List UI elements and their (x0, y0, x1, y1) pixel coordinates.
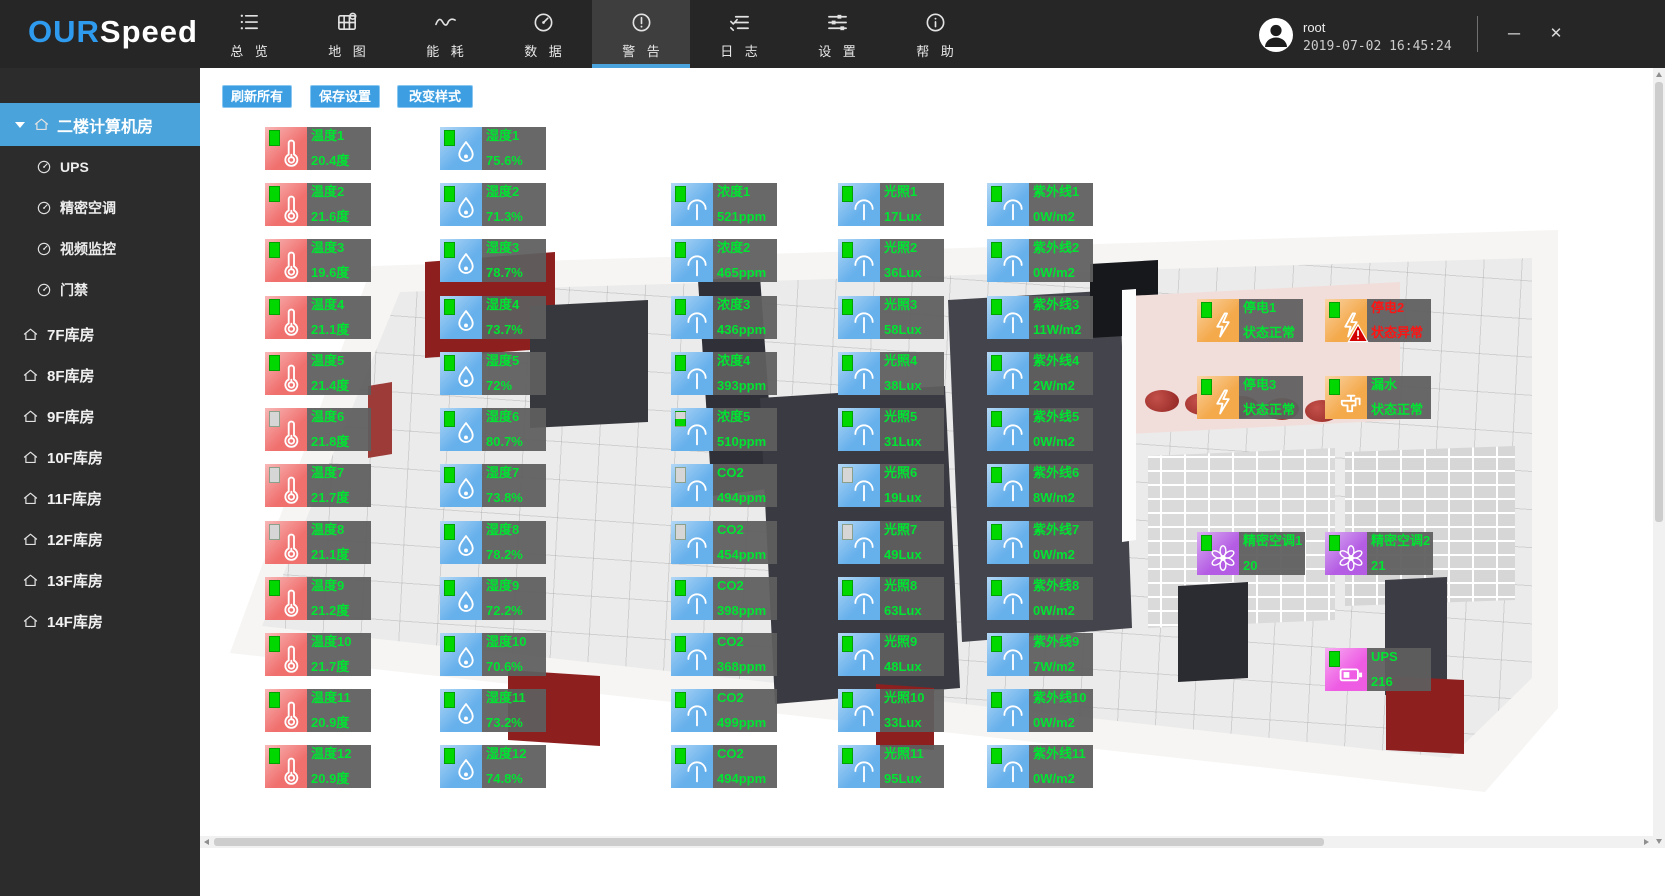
co2-sensor-badge[interactable]: CO2 494ppm (671, 464, 777, 507)
uv-sensor-badge[interactable]: 紫外线9 7W/m2 (987, 633, 1093, 676)
sensor-label: 湿度2 (486, 184, 543, 199)
meter-icon (683, 644, 711, 674)
sensor-tile (265, 689, 307, 732)
sensor-panel: 温度6 21.8度 (307, 408, 371, 451)
thermometer-icon (277, 700, 305, 730)
sidebar-item-room-13f[interactable]: 13F库房 (0, 560, 200, 601)
sidebar-item-active-room[interactable]: 二楼计算机房 (0, 103, 200, 146)
sensor-value: 20.9度 (311, 715, 368, 730)
thermometer-icon (277, 475, 305, 505)
sensor-panel: 精密空调1 20 (1239, 532, 1305, 575)
sensor-label: 湿度8 (486, 522, 543, 537)
sensor-panel: CO2 494ppm (713, 464, 777, 507)
nav-item-overview[interactable]: 总 览 (200, 0, 298, 68)
sensor-value: 36Lux (884, 265, 941, 280)
co2-sensor-badge[interactable]: CO2 454ppm (671, 521, 777, 564)
battery-indicator (842, 186, 853, 202)
sensor-label: 紫外线8 (1033, 578, 1090, 593)
uv-sensor-badge[interactable]: 紫外线10 0W/m2 (987, 689, 1093, 732)
sidebar-subitem-1[interactable]: UPS (0, 146, 200, 187)
light-sensor-badge[interactable]: 光照10 33Lux (838, 689, 944, 732)
sensor-label: CO2 (717, 578, 774, 593)
sensor-tile (440, 408, 482, 451)
nav-item-map[interactable]: 地 图 (298, 0, 396, 68)
sensor-label: 停电1 (1243, 300, 1300, 315)
temperature-sensor-badge[interactable]: 温度3 19.6度 (265, 239, 371, 282)
sensor-panel: UPS 216 (1367, 648, 1431, 691)
sidebar-item-room-11f[interactable]: 11F库房 (0, 478, 200, 519)
home-icon (22, 449, 39, 466)
power-sensor-badge[interactable]: 停电3 状态正常 (1197, 376, 1303, 419)
sensor-tile (440, 296, 482, 339)
sensor-value: 72.2% (486, 603, 543, 618)
sensor-label: 停电2 (1371, 300, 1428, 315)
sensor-value: 436ppm (717, 322, 774, 337)
humidity-sensor-badge[interactable]: 湿度7 73.8% (440, 464, 546, 507)
humidity-sensor-badge[interactable]: 湿度5 72% (440, 352, 546, 395)
sensor-tile (671, 745, 713, 788)
sidebar-item-room-8f[interactable]: 8F库房 (0, 355, 200, 396)
sensor-panel: 光照9 48Lux (880, 633, 944, 676)
sensor-value: 398ppm (717, 603, 774, 618)
sensor-label: 精密空调2 (1371, 533, 1430, 548)
uv-sensor-badge[interactable]: 紫外线2 0W/m2 (987, 239, 1093, 282)
sensor-value: 20 (1243, 558, 1302, 573)
gauge-icon (532, 11, 555, 34)
sensor-panel: 温度11 20.9度 (307, 689, 371, 732)
sliders-icon (826, 11, 849, 34)
sensor-panel: 停电1 状态正常 (1239, 299, 1303, 342)
nav-item-label: 能 耗 (422, 41, 468, 60)
nav-item-alerts[interactable]: 警 告 (592, 0, 690, 68)
battery-indicator (1329, 535, 1340, 551)
sensor-value: 状态正常 (1371, 402, 1428, 417)
ac-sensor-badge[interactable]: 精密空调2 21 (1325, 532, 1431, 575)
thermometer-icon (277, 644, 305, 674)
sensor-tile (838, 745, 880, 788)
sensor-panel: 光照10 33Lux (880, 689, 944, 732)
sensor-tile (987, 464, 1029, 507)
main-nav: 总 览地 图能 耗数 据警 告日 志设 置帮 助 (200, 0, 984, 68)
nav-item-label: 总 览 (226, 41, 272, 60)
sensor-value: 0W/m2 (1033, 209, 1090, 224)
sensor-tile (838, 689, 880, 732)
light-sensor-badge[interactable]: 光照5 31Lux (838, 408, 944, 451)
sensor-tile (265, 464, 307, 507)
thermometer-icon (277, 419, 305, 449)
uv-sensor-badge[interactable]: 紫外线6 8W/m2 (987, 464, 1093, 507)
home-icon (33, 116, 50, 133)
co2-sensor-badge[interactable]: 浓度4 393ppm (671, 352, 777, 395)
sensor-tile (987, 745, 1029, 788)
uv-sensor-badge[interactable]: 紫外线7 0W/m2 (987, 521, 1093, 564)
co2-sensor-badge[interactable]: 浓度3 436ppm (671, 296, 777, 339)
sensor-tile (987, 408, 1029, 451)
sidebar-item-room-7f[interactable]: 7F库房 (0, 314, 200, 355)
home-icon (22, 572, 39, 589)
scroll-up-icon[interactable] (1656, 72, 1662, 77)
scroll-left-icon[interactable] (204, 839, 209, 845)
sensor-panel: 光照7 49Lux (880, 521, 944, 564)
bolt-icon (1209, 310, 1237, 340)
refresh-all-button[interactable]: 刷新所有 (222, 85, 292, 108)
ac-sensor-badge[interactable]: 精密空调1 20 (1197, 532, 1303, 575)
droplet-icon (452, 644, 480, 674)
sensor-label: CO2 (717, 522, 774, 537)
thermometer-icon (277, 307, 305, 337)
humidity-sensor-badge[interactable]: 湿度9 72.2% (440, 577, 546, 620)
light-sensor-badge[interactable]: 光照2 36Lux (838, 239, 944, 282)
sensor-tile (987, 352, 1029, 395)
sensor-value: 2W/m2 (1033, 378, 1090, 393)
humidity-sensor-badge[interactable]: 湿度11 73.2% (440, 689, 546, 732)
sensor-label: 光照2 (884, 240, 941, 255)
meter-icon (999, 363, 1027, 393)
sensor-label: 紫外线4 (1033, 353, 1090, 368)
sensor-tile (671, 296, 713, 339)
sensor-label: UPS (1371, 649, 1428, 664)
sensor-label: 温度9 (311, 578, 368, 593)
battery-indicator (444, 692, 455, 708)
sensor-tile (671, 689, 713, 732)
sensor-panel: 紫外线10 0W/m2 (1029, 689, 1093, 732)
sensor-panel: 湿度10 70.6% (482, 633, 546, 676)
sensor-value: 74.8% (486, 771, 543, 786)
co2-sensor-badge[interactable]: 浓度2 465ppm (671, 239, 777, 282)
battery-indicator (444, 186, 455, 202)
sensor-panel: 浓度4 393ppm (713, 352, 777, 395)
sensor-value: 465ppm (717, 265, 774, 280)
logo-text-blue: OUR (28, 14, 100, 49)
uv-sensor-badge[interactable]: 紫外线8 0W/m2 (987, 577, 1093, 620)
sensor-label: 湿度9 (486, 578, 543, 593)
sensor-label: 停电3 (1243, 377, 1300, 392)
sensor-value: 8W/m2 (1033, 490, 1090, 505)
sensor-label: 光照1 (884, 184, 941, 199)
sensor-label: 光照6 (884, 465, 941, 480)
battery-indicator (444, 748, 455, 764)
sidebar-subitem-2[interactable]: 精密空调 (0, 187, 200, 228)
nav-item-settings[interactable]: 设 置 (788, 0, 886, 68)
sensor-tile (671, 352, 713, 395)
sensor-value: 11W/m2 (1033, 322, 1090, 337)
droplet-icon (452, 475, 480, 505)
meter-icon (683, 363, 711, 393)
battery-indicator (269, 355, 280, 371)
sensor-label: 温度11 (311, 690, 368, 705)
sidebar-item-label: 14F库房 (47, 611, 103, 632)
sensor-tile (440, 521, 482, 564)
humidity-sensor-badge[interactable]: 湿度10 70.6% (440, 633, 546, 676)
meter-icon (850, 307, 878, 337)
co2-sensor-badge[interactable]: CO2 499ppm (671, 689, 777, 732)
meter-icon (999, 756, 1027, 786)
nav-item-label: 设 置 (814, 41, 860, 60)
sensor-panel: CO2 454ppm (713, 521, 777, 564)
sensor-value: 78.7% (486, 265, 543, 280)
nav-item-energy[interactable]: 能 耗 (396, 0, 494, 68)
battery-indicator (444, 411, 455, 427)
sensor-tile (987, 633, 1029, 676)
battery-indicator (675, 524, 686, 540)
change-style-button[interactable]: 改变样式 (397, 85, 473, 108)
light-sensor-badge[interactable]: 光照1 17Lux (838, 183, 944, 226)
sensor-panel: 紫外线8 0W/m2 (1029, 577, 1093, 620)
sensor-panel: CO2 398ppm (713, 577, 777, 620)
sensor-label: 湿度4 (486, 297, 543, 312)
sensor-value: 95Lux (884, 771, 941, 786)
sensor-tile (838, 296, 880, 339)
fan-icon (1337, 543, 1365, 573)
sensor-label: 紫外线3 (1033, 297, 1090, 312)
sensor-panel: 紫外线6 8W/m2 (1029, 464, 1093, 507)
uv-sensor-badge[interactable]: 紫外线4 2W/m2 (987, 352, 1093, 395)
sensor-label: 浓度4 (717, 353, 774, 368)
sidebar-subitem-label: UPS (60, 159, 89, 175)
horizontal-scrollbar[interactable] (200, 836, 1653, 848)
home-icon (22, 613, 39, 630)
battery-indicator (842, 748, 853, 764)
scroll-down-icon[interactable] (1656, 839, 1662, 844)
sensor-panel: 紫外线5 0W/m2 (1029, 408, 1093, 451)
temperature-sensor-badge[interactable]: 温度6 21.8度 (265, 408, 371, 451)
close-button[interactable]: ✕ (1538, 20, 1574, 48)
temperature-sensor-badge[interactable]: 温度12 20.9度 (265, 745, 371, 788)
meter-icon (999, 250, 1027, 280)
meter-icon (683, 532, 711, 562)
humidity-sensor-badge[interactable]: 湿度2 71.3% (440, 183, 546, 226)
co2-sensor-badge[interactable]: CO2 494ppm (671, 745, 777, 788)
sensor-value: 21.8度 (311, 434, 368, 449)
uv-sensor-badge[interactable]: 紫外线5 0W/m2 (987, 408, 1093, 451)
sensor-panel: 浓度5 510ppm (713, 408, 777, 451)
sensor-tile (265, 408, 307, 451)
uv-sensor-badge[interactable]: 紫外线3 11W/m2 (987, 296, 1093, 339)
sensor-value: 38Lux (884, 378, 941, 393)
meter-icon (850, 532, 878, 562)
faucet-icon (1337, 387, 1365, 417)
nav-item-data[interactable]: 数 据 (494, 0, 592, 68)
droplet-icon (452, 419, 480, 449)
list-icon (238, 11, 261, 34)
sensor-panel: 温度9 21.2度 (307, 577, 371, 620)
sensor-tile (987, 689, 1029, 732)
sensor-value: 48Lux (884, 659, 941, 674)
sensor-value: 20.4度 (311, 153, 368, 168)
power-sensor-badge[interactable]: 停电1 状态正常 (1197, 299, 1303, 342)
sensor-value: 70.6% (486, 659, 543, 674)
humidity-sensor-badge[interactable]: 湿度3 78.7% (440, 239, 546, 282)
humidity-sensor-badge[interactable]: 湿度6 80.7% (440, 408, 546, 451)
sensor-tile (671, 183, 713, 226)
nav-item-logs[interactable]: 日 志 (690, 0, 788, 68)
nav-item-help[interactable]: 帮 助 (886, 0, 984, 68)
sensor-panel: 湿度2 71.3% (482, 183, 546, 226)
user-box[interactable]: root 2019-07-02 16:45:24 (1258, 17, 1452, 54)
vertical-scroll-thumb[interactable] (1655, 82, 1663, 522)
sensor-value: 73.2% (486, 715, 543, 730)
light-sensor-badge[interactable]: 光照7 49Lux (838, 521, 944, 564)
user-name: root (1303, 17, 1452, 35)
sensor-value: 499ppm (717, 715, 774, 730)
main-content: 刷新所有保存设置改变样式 温度1 20.4度 温度2 21.6度 温 (200, 68, 1653, 836)
sidebar-item-label: 9F库房 (47, 406, 95, 427)
temperature-sensor-badge[interactable]: 温度10 21.7度 (265, 633, 371, 676)
temperature-sensor-badge[interactable]: 温度9 21.2度 (265, 577, 371, 620)
sensor-panel: 湿度5 72% (482, 352, 546, 395)
sidebar-item-room-10f[interactable]: 10F库房 (0, 437, 200, 478)
sensor-panel: 光照2 36Lux (880, 239, 944, 282)
sensor-panel: 湿度4 73.7% (482, 296, 546, 339)
sensor-label: 浓度3 (717, 297, 774, 312)
minimize-button[interactable]: ─ (1496, 20, 1532, 48)
humidity-sensor-badge[interactable]: 湿度12 74.8% (440, 745, 546, 788)
sensor-tile (671, 464, 713, 507)
log-icon (728, 11, 751, 34)
horizontal-scroll-thumb[interactable] (214, 838, 1324, 846)
sensor-value: 21.2度 (311, 603, 368, 618)
sensor-panel: 温度1 20.4度 (307, 127, 371, 170)
sidebar-item-label: 13F库房 (47, 570, 103, 591)
battery-indicator (269, 130, 280, 146)
sensor-panel: 紫外线2 0W/m2 (1029, 239, 1093, 282)
humidity-sensor-badge[interactable]: 湿度1 75.6% (440, 127, 546, 170)
sidebar-item-room-14f[interactable]: 14F库房 (0, 601, 200, 642)
sidebar-item-label: 11F库房 (47, 488, 102, 509)
droplet-icon (452, 138, 480, 168)
temperature-sensor-badge[interactable]: 温度5 21.4度 (265, 352, 371, 395)
sensor-panel: 浓度1 521ppm (713, 183, 777, 226)
light-sensor-badge[interactable]: 光照4 38Lux (838, 352, 944, 395)
light-sensor-badge[interactable]: 光照8 63Lux (838, 577, 944, 620)
battery-indicator (1201, 535, 1212, 551)
sensor-panel: 光照11 95Lux (880, 745, 944, 788)
sensor-panel: 光照1 17Lux (880, 183, 944, 226)
battery-indicator (991, 580, 1002, 596)
sidebar-item-room-12f[interactable]: 12F库房 (0, 519, 200, 560)
battery-indicator (444, 299, 455, 315)
sensor-label: 温度6 (311, 409, 368, 424)
sensor-value: 63Lux (884, 603, 941, 618)
sensor-panel: 精密空调2 21 (1367, 532, 1433, 575)
battery-indicator (842, 242, 853, 258)
temperature-sensor-badge[interactable]: 温度7 21.7度 (265, 464, 371, 507)
sensor-value: 19.6度 (311, 265, 368, 280)
battery-indicator (675, 355, 686, 371)
humidity-sensor-badge[interactable]: 湿度4 73.7% (440, 296, 546, 339)
titlebar-separator (1477, 16, 1478, 52)
temperature-sensor-badge[interactable]: 温度2 21.6度 (265, 183, 371, 226)
sidebar-item-room-9f[interactable]: 9F库房 (0, 396, 200, 437)
scroll-right-icon[interactable] (1644, 839, 1649, 845)
sensor-label: 温度5 (311, 353, 368, 368)
sensor-value: 20.9度 (311, 771, 368, 786)
meter-icon (683, 475, 711, 505)
sensor-panel: 光照4 38Lux (880, 352, 944, 395)
light-sensor-badge[interactable]: 光照9 48Lux (838, 633, 944, 676)
sensor-label: 湿度5 (486, 353, 543, 368)
temperature-sensor-badge[interactable]: 温度8 21.1度 (265, 521, 371, 564)
sidebar-subitem-4[interactable]: 门禁 (0, 269, 200, 310)
sensor-panel: 温度2 21.6度 (307, 183, 371, 226)
battery-indicator (1329, 379, 1340, 395)
sensor-panel: 湿度6 80.7% (482, 408, 546, 451)
light-sensor-badge[interactable]: 光照6 19Lux (838, 464, 944, 507)
sensor-label: CO2 (717, 634, 774, 649)
thermometer-icon (277, 250, 305, 280)
battery-indicator (991, 524, 1002, 540)
meter-icon (683, 250, 711, 280)
sensor-value: 33Lux (884, 715, 941, 730)
meter-icon (683, 307, 711, 337)
co2-sensor-badge[interactable]: CO2 398ppm (671, 577, 777, 620)
sensor-tile (440, 352, 482, 395)
light-sensor-badge[interactable]: 光照11 95Lux (838, 745, 944, 788)
co2-sensor-badge[interactable]: CO2 368ppm (671, 633, 777, 676)
meter-icon (999, 419, 1027, 449)
meter-icon (850, 644, 878, 674)
sensor-panel: 湿度11 73.2% (482, 689, 546, 732)
sensor-value: 49Lux (884, 547, 941, 562)
sidebar-item-label: 12F库房 (47, 529, 103, 550)
sensor-label: 紫外线2 (1033, 240, 1090, 255)
sensor-value: 19Lux (884, 490, 941, 505)
sidebar: 二楼计算机房 UPS 精密空调 视频监控 门禁 7F库房 8F库房 9F库房 1… (0, 68, 200, 896)
sensor-tile (838, 239, 880, 282)
meter-icon (999, 700, 1027, 730)
sidebar-subitem-3[interactable]: 视频监控 (0, 228, 200, 269)
battery-indicator (1201, 379, 1212, 395)
sensor-label: 紫外线7 (1033, 522, 1090, 537)
sensor-label: 漏水 (1371, 377, 1428, 392)
vertical-scrollbar[interactable] (1653, 68, 1665, 848)
sensor-value: 494ppm (717, 771, 774, 786)
meter-icon (999, 307, 1027, 337)
power-sensor-badge[interactable]: 停电2 状态异常 (1325, 299, 1431, 342)
sensor-label: 湿度11 (486, 690, 543, 705)
temperature-sensor-badge[interactable]: 温度1 20.4度 (265, 127, 371, 170)
sensor-label: 温度12 (311, 746, 368, 761)
battery-indicator (991, 299, 1002, 315)
water-sensor-badge[interactable]: 漏水 状态正常 (1325, 376, 1431, 419)
sensor-label: 温度10 (311, 634, 368, 649)
temperature-sensor-badge[interactable]: 温度11 20.9度 (265, 689, 371, 732)
uv-sensor-badge[interactable]: 紫外线1 0W/m2 (987, 183, 1093, 226)
save-settings-button[interactable]: 保存设置 (310, 85, 380, 108)
battery-indicator (675, 467, 686, 483)
sensor-tile (265, 745, 307, 788)
co2-sensor-badge[interactable]: 浓度5 510ppm (671, 408, 777, 451)
logo-text-white: Speed (100, 14, 198, 49)
light-sensor-badge[interactable]: 光照3 58Lux (838, 296, 944, 339)
humidity-sensor-badge[interactable]: 湿度8 78.2% (440, 521, 546, 564)
uv-sensor-badge[interactable]: 紫外线11 0W/m2 (987, 745, 1093, 788)
battery-indicator (675, 636, 686, 652)
battery-indicator (675, 299, 686, 315)
ups-sensor-badge[interactable]: UPS 216 (1325, 648, 1431, 691)
sensor-value: 494ppm (717, 490, 774, 505)
sensor-panel: 温度12 20.9度 (307, 745, 371, 788)
sensor-tile (671, 239, 713, 282)
sensor-value: 21.1度 (311, 547, 368, 562)
temperature-sensor-badge[interactable]: 温度4 21.1度 (265, 296, 371, 339)
sidebar-subitem-label: 门禁 (60, 280, 88, 300)
sensor-label: 光照8 (884, 578, 941, 593)
battery-indicator (675, 186, 686, 202)
co2-sensor-badge[interactable]: 浓度1 521ppm (671, 183, 777, 226)
sensor-value: 393ppm (717, 378, 774, 393)
thermometer-icon (277, 756, 305, 786)
